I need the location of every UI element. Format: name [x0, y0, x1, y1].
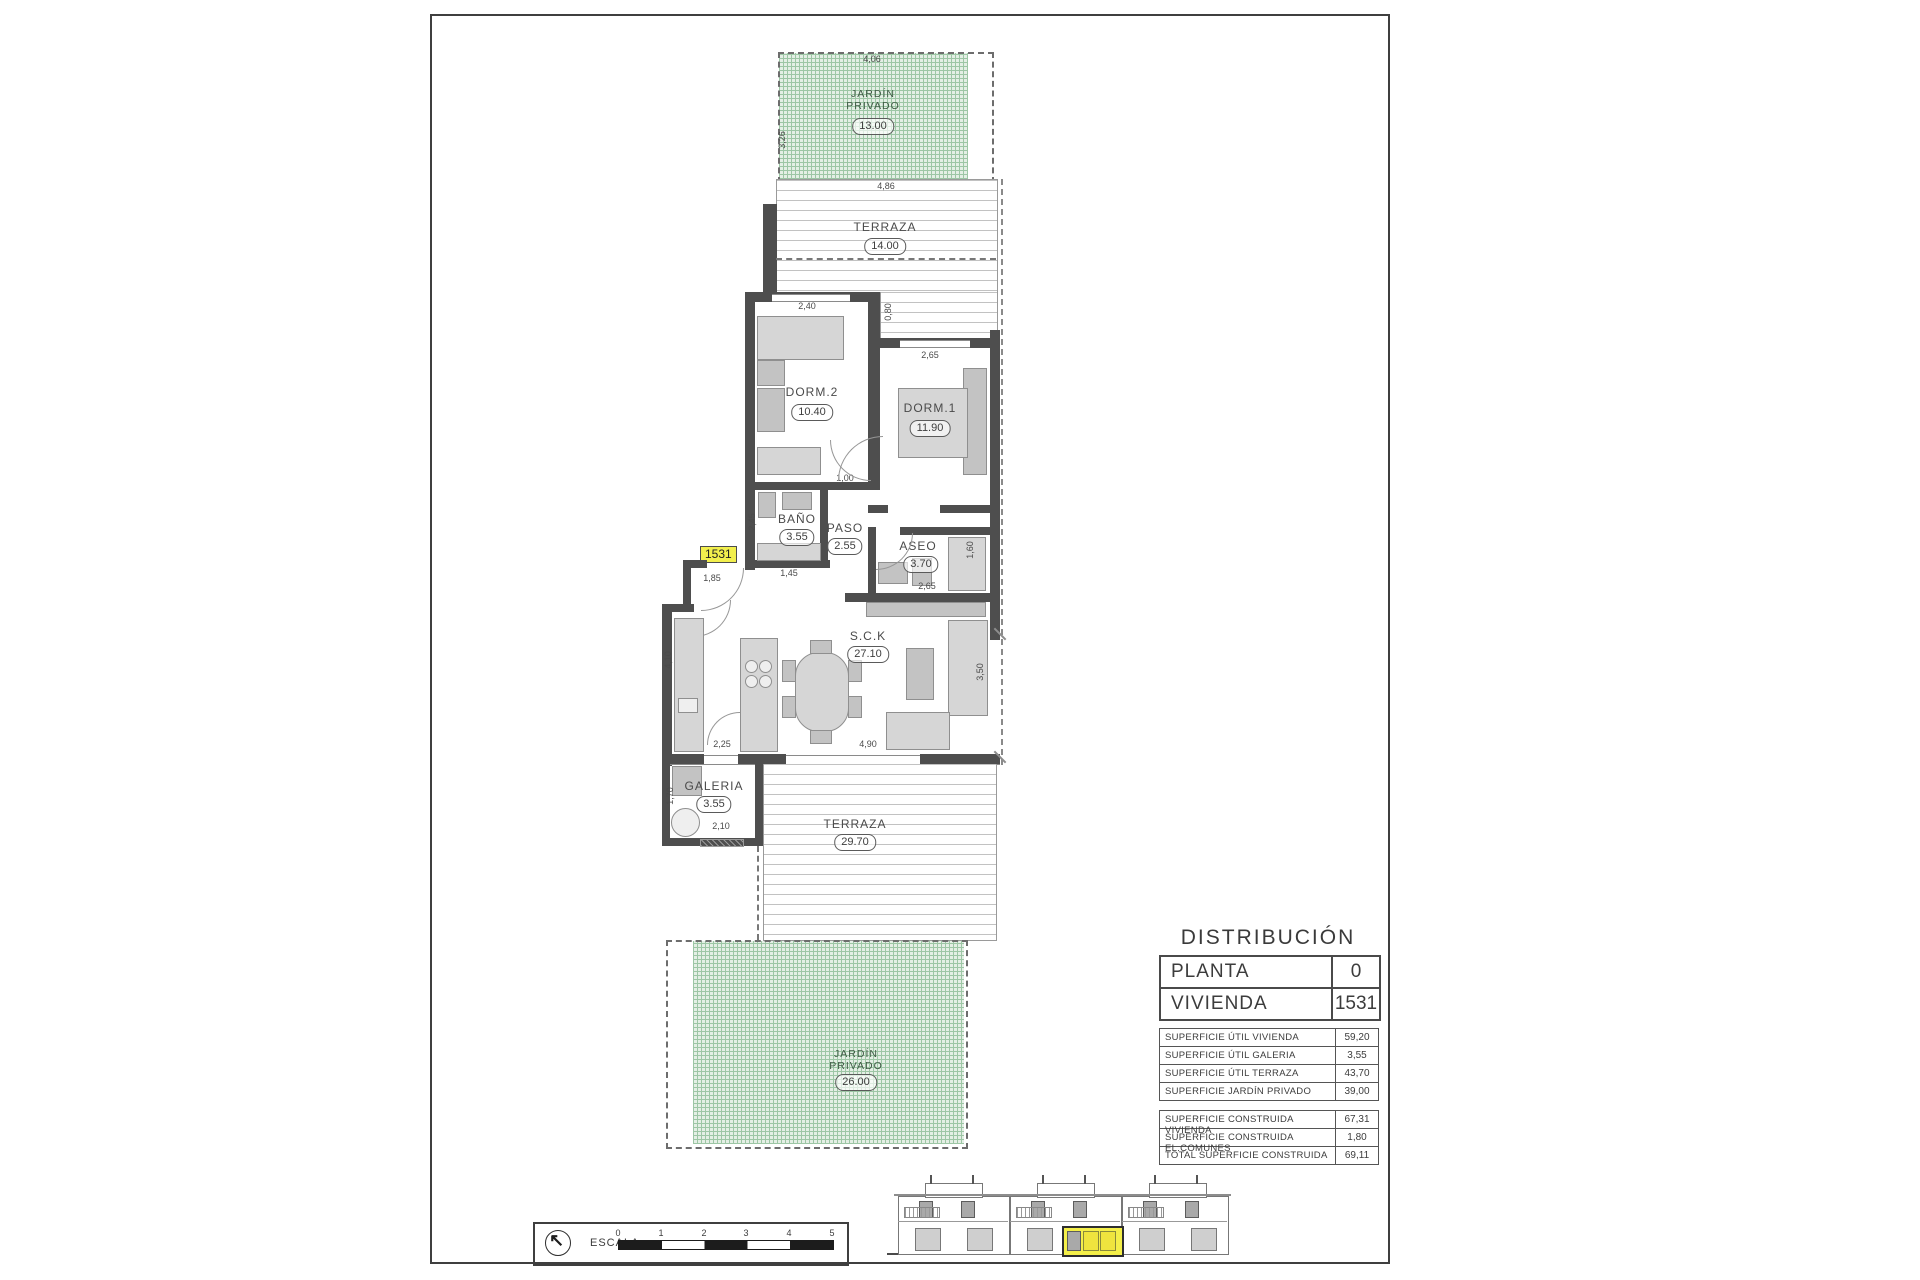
distribution-built-table: SUPERFICIE CONSTRUIDA VIVIENDA 67,31 SUP…	[1159, 1110, 1379, 1165]
dim-garden-top-height: 3,26	[777, 131, 787, 149]
washer	[671, 808, 700, 837]
wardrobe-dorm2	[757, 447, 821, 475]
wall-bano-bottom	[745, 560, 830, 568]
dresser-dorm2	[757, 388, 785, 432]
room-label-galeria: GALERIA	[684, 780, 743, 793]
dim-kitchen-height: 4,10	[663, 651, 673, 669]
wall-dorm1-bottom-2	[940, 505, 1000, 513]
room-area-aseo: 3.70	[903, 556, 938, 573]
room-area-terrace-bottom: 29.70	[834, 834, 876, 851]
util-row-value: 59,20	[1335, 1029, 1378, 1046]
wall-sck-left	[662, 604, 672, 766]
room-label-bano: BAÑO	[778, 513, 816, 526]
elevation-antenna	[930, 1175, 932, 1184]
burner-3	[745, 675, 758, 688]
room-label-dorm2: DORM.2	[786, 386, 839, 399]
room-label-dorm1: DORM.1	[904, 402, 957, 415]
table-row: SUPERFICIE ÚTIL TERRAZA 43,70	[1160, 1065, 1378, 1083]
tv-bench	[866, 602, 986, 617]
sofa-bottom	[886, 712, 950, 750]
elevation-window	[1185, 1201, 1199, 1218]
vivienda-value: 1531	[1331, 989, 1379, 1019]
chair-2	[782, 696, 796, 718]
scale-tick: 1	[658, 1228, 663, 1238]
planta-value: 0	[1331, 957, 1379, 987]
room-label-garden-bottom: JARDÍN PRIVADO	[829, 1048, 882, 1072]
table-row: SUPERFICIE CONSTRUIDA VIVIENDA 67,31	[1160, 1111, 1378, 1129]
room-area-sck: 27.10	[847, 646, 889, 663]
built-row-value: 69,11	[1335, 1147, 1378, 1164]
elevation-window	[1191, 1228, 1217, 1251]
dim-dorm1-width: 2,65	[921, 350, 939, 360]
burner-4	[759, 675, 772, 688]
dim-deck-depth: 0,80	[883, 303, 893, 321]
util-row-value: 39,00	[1335, 1083, 1378, 1100]
room-area-dorm1: 11.90	[910, 420, 951, 437]
room-area-galeria: 3.55	[696, 796, 731, 813]
util-row-label: SUPERFICIE ÚTIL VIVIENDA	[1160, 1029, 1335, 1046]
table-row: SUPERFICIE JARDÍN PRIVADO 39,00	[1160, 1083, 1378, 1100]
nightstand-dorm2	[757, 360, 785, 386]
dim-terrace-top-width: 4,86	[877, 181, 895, 191]
terrace-top-dashed-line	[776, 258, 996, 260]
elevation-highlight-window	[1083, 1231, 1099, 1251]
toilet-bano	[758, 492, 776, 518]
table-row: PLANTA 0	[1161, 957, 1379, 989]
room-area-garden-bottom: 26.00	[835, 1074, 877, 1091]
built-row-value: 67,31	[1335, 1111, 1378, 1128]
planta-label: PLANTA	[1161, 957, 1331, 987]
elevation-highlight-door	[1067, 1231, 1081, 1251]
plot-boundary-right	[1001, 179, 1003, 765]
distribution-title: DISTRIBUCIÓN	[1159, 926, 1377, 950]
dim-garden-top-width: 4,06	[863, 54, 881, 64]
distribution-util-table: SUPERFICIE ÚTIL VIVIENDA 59,20 SUPERFICI…	[1159, 1028, 1379, 1101]
wall-south-3	[920, 754, 1000, 764]
table-row: SUPERFICIE CONSTRUIDA EL.COMUNES 1,80	[1160, 1129, 1378, 1147]
elevation-roofline	[894, 1194, 1012, 1196]
elevation-window	[961, 1201, 975, 1218]
kitchen-counter	[674, 618, 704, 752]
room-label-terrace-top: TERRAZA	[853, 221, 916, 234]
wall-aseo-bottom	[845, 593, 1000, 602]
elevation-window	[1027, 1228, 1053, 1251]
elevation-antenna	[1084, 1175, 1086, 1184]
wall-terrace-left	[763, 204, 777, 302]
wall-dorm1-bottom	[868, 505, 888, 513]
wall-aseo-left	[868, 527, 876, 601]
room-area-terrace-top: 14.00	[864, 238, 906, 255]
dining-table	[795, 652, 849, 732]
bed-dorm2	[757, 316, 844, 360]
built-row-value: 1,80	[1335, 1129, 1378, 1146]
util-row-label: SUPERFICIE ÚTIL TERRAZA	[1160, 1065, 1335, 1082]
elevation-antenna	[972, 1175, 974, 1184]
scale-tick: 5	[829, 1228, 834, 1238]
scale-tick: 4	[786, 1228, 791, 1238]
room-label-sck: S.C.K	[850, 630, 886, 643]
wall-entry-side	[683, 560, 691, 610]
elevation-floor-line	[898, 1221, 1008, 1222]
elevation-roofline	[1006, 1194, 1124, 1196]
window-dorm1	[900, 340, 970, 348]
elevation-floor-line	[1010, 1221, 1120, 1222]
chair-6	[810, 730, 832, 744]
table-row: TOTAL SUPERFICIE CONSTRUIDA 69,11	[1160, 1147, 1378, 1164]
galeria-door-sill	[700, 839, 744, 847]
chair-3	[848, 660, 862, 682]
util-row-label: SUPERFICIE ÚTIL GALERIA	[1160, 1047, 1335, 1064]
dim-bano-width: 1,45	[780, 568, 798, 578]
dim-aseo-width: 2,65	[918, 581, 936, 591]
room-label-paso: PASO	[827, 522, 863, 535]
dim-entry-door: 1,85	[703, 573, 721, 583]
room-area-bano: 3.55	[779, 529, 814, 546]
vivienda-label: VIVIENDA	[1161, 989, 1331, 1019]
terrace-bottom-dashed	[757, 846, 759, 940]
terrace-bottom-deck	[763, 764, 997, 941]
chair-4	[848, 696, 862, 718]
elevation-roofline	[1118, 1194, 1231, 1196]
terrace-strip-over-dorm1	[880, 292, 998, 339]
room-area-garden-top: 13.00	[852, 118, 894, 135]
built-row-label: SUPERFICIE CONSTRUIDA EL.COMUNES	[1160, 1129, 1335, 1146]
built-row-label: SUPERFICIE CONSTRUIDA VIVIENDA	[1160, 1111, 1335, 1128]
wall-aseo-top	[900, 527, 1000, 535]
dim-salon-width: 4,90	[859, 739, 877, 749]
util-row-label: SUPERFICIE JARDÍN PRIVADO	[1160, 1083, 1335, 1100]
wall-galeria-right	[755, 764, 763, 846]
wall-bano-top	[745, 482, 880, 490]
wall-south-2	[738, 754, 786, 764]
plan-sheet-canvas: 4,06 3,26 JARDÍN PRIVADO 13.00 4,86 TERR…	[0, 0, 1920, 1280]
coffee-table	[906, 648, 934, 700]
north-arrow-glyph: ↖	[549, 1230, 564, 1251]
table-row: SUPERFICIE ÚTIL GALERIA 3,55	[1160, 1047, 1378, 1065]
scale-tick: 3	[743, 1228, 748, 1238]
elevation-antenna	[1154, 1175, 1156, 1184]
room-area-dorm2: 10.40	[791, 404, 833, 421]
wall-galeria-left	[662, 764, 670, 846]
elevation-balcony-rail	[1016, 1207, 1052, 1218]
garden-bottom-plot-boundary	[666, 940, 968, 1149]
table-row: SUPERFICIE ÚTIL VIVIENDA 59,20	[1160, 1029, 1378, 1047]
elevation-window	[1139, 1228, 1165, 1251]
burner-2	[759, 660, 772, 673]
dim-salon-height: 3,50	[975, 663, 985, 681]
dim-galeria-height: 1,70	[665, 787, 675, 805]
kitchen-island	[740, 638, 778, 752]
elevation-balcony-rail	[904, 1207, 940, 1218]
elevation-balcony-rail	[1128, 1207, 1164, 1218]
elevation-antenna	[1042, 1175, 1044, 1184]
room-label-terrace-bottom: TERRAZA	[823, 818, 886, 831]
room-area-paso: 2.55	[827, 538, 862, 555]
sink-bano	[782, 492, 812, 510]
chair-1	[782, 660, 796, 682]
built-row-label: TOTAL SUPERFICIE CONSTRUIDA	[1160, 1147, 1335, 1164]
room-label-garden-top: JARDÍN PRIVADO	[846, 88, 899, 112]
elevation-floor-line	[1122, 1221, 1227, 1222]
scale-tick: 2	[701, 1228, 706, 1238]
util-row-value: 3,55	[1335, 1047, 1378, 1064]
dim-galeria-width: 2,10	[712, 821, 730, 831]
distribution-header-table: PLANTA 0 VIVIENDA 1531	[1159, 955, 1381, 1021]
dim-dorm2-width: 2,40	[798, 301, 816, 311]
elevation-window	[1073, 1201, 1087, 1218]
elevation-antenna	[1196, 1175, 1198, 1184]
scale-bar	[618, 1240, 834, 1250]
burner-1	[745, 660, 758, 673]
dim-bano-height: 2,45	[747, 513, 757, 531]
elevation-window	[967, 1228, 993, 1251]
chair-5	[810, 640, 832, 654]
table-row: VIVIENDA 1531	[1161, 989, 1379, 1019]
wall-south-1	[662, 754, 704, 764]
scale-tick: 0	[615, 1228, 620, 1238]
elevation-highlight-window	[1100, 1231, 1116, 1251]
elevation-window	[915, 1228, 941, 1251]
kitchen-sink	[678, 698, 698, 713]
dim-aseo-height: 1,60	[965, 541, 975, 559]
util-row-value: 43,70	[1335, 1065, 1378, 1082]
